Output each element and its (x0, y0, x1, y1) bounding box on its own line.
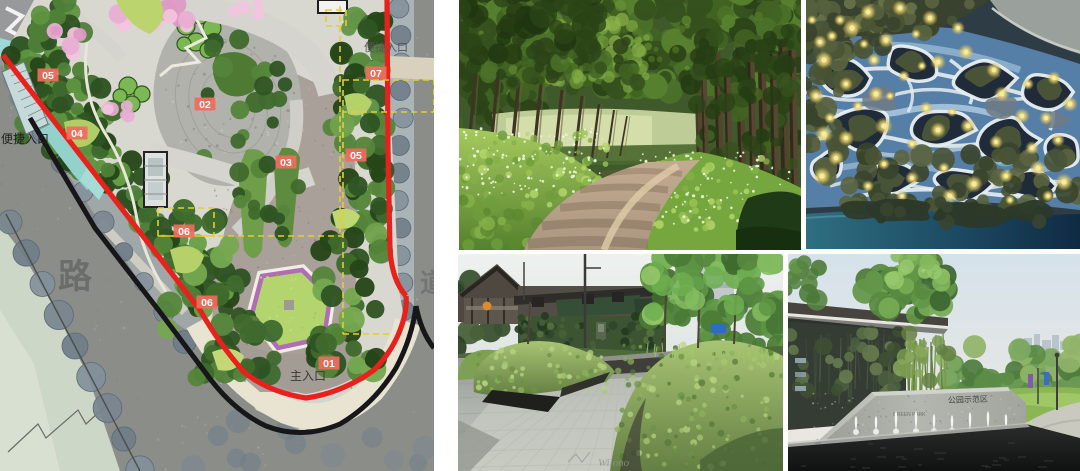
svg-text:Wilono: Wilono (598, 457, 630, 469)
svg-text:03: 03 (280, 157, 292, 169)
svg-text:公园示范区: 公园示范区 (948, 394, 988, 405)
svg-text:04: 04 (71, 128, 83, 140)
svg-text:05: 05 (350, 150, 362, 162)
svg-text:06: 06 (178, 226, 190, 238)
svg-text:路: 路 (58, 258, 93, 296)
svg-text:主入口: 主入口 (290, 369, 326, 383)
svg-text:02: 02 (199, 99, 211, 111)
svg-text:05: 05 (42, 70, 54, 82)
svg-text:便捷入口: 便捷入口 (364, 40, 408, 54)
svg-text:07: 07 (370, 68, 382, 80)
svg-text:GREEN PARK: GREEN PARK (893, 412, 926, 418)
svg-text:便捷入口: 便捷入口 (1, 132, 49, 146)
svg-text:06: 06 (201, 297, 213, 309)
